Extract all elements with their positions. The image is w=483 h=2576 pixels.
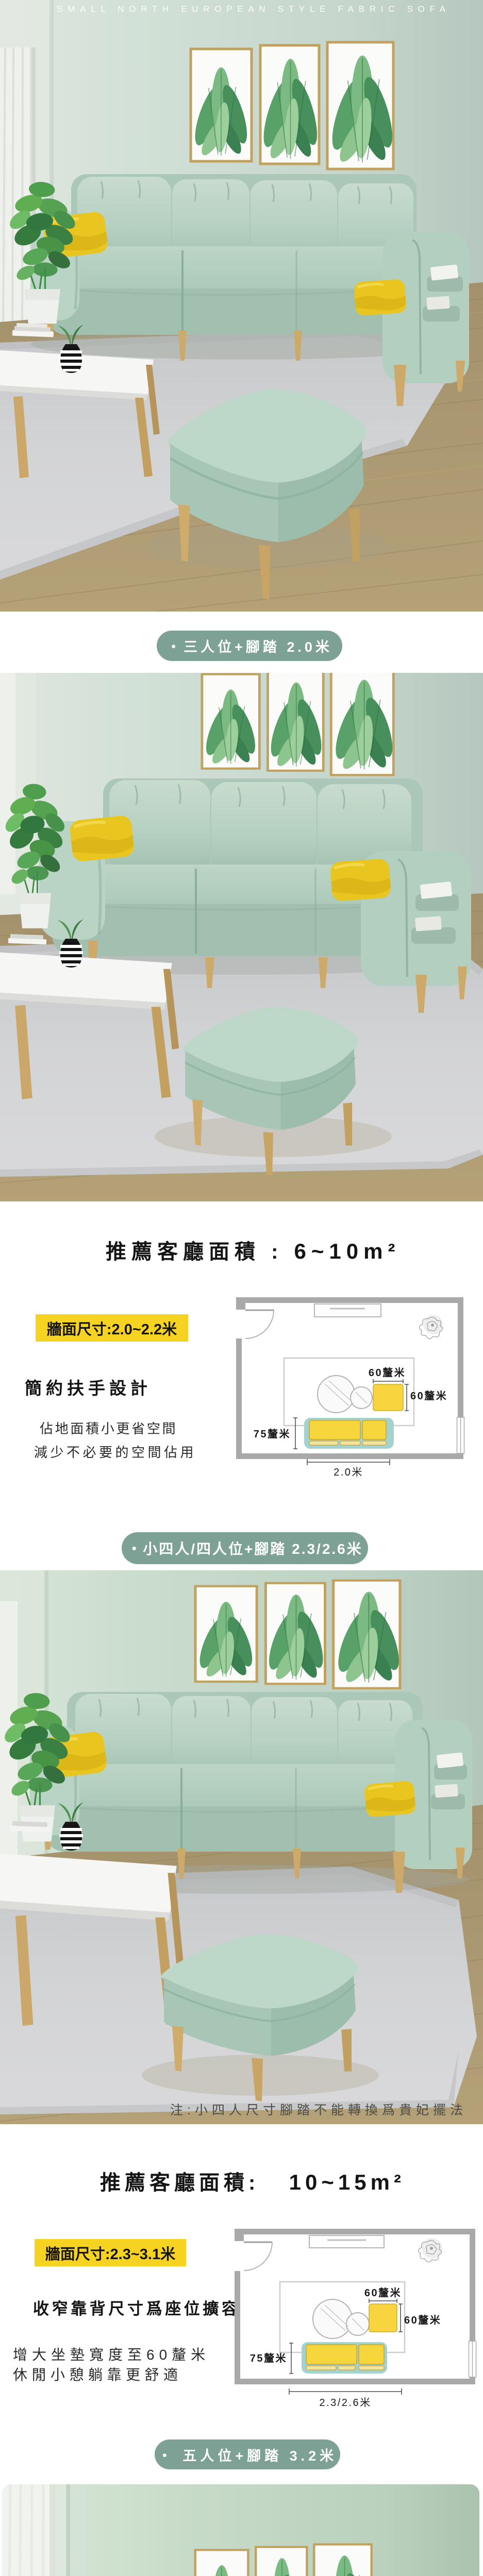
svg-text:60釐米: 60釐米 <box>369 1367 406 1379</box>
svg-text:2.3/2.6米: 2.3/2.6米 <box>319 2397 371 2409</box>
svg-text:60釐米: 60釐米 <box>410 1390 447 1402</box>
svg-text:SMALL NORTH EUROPEAN STYLE FAB: SMALL NORTH EUROPEAN STYLE FABRIC SOFA <box>57 4 450 14</box>
svg-text:75釐米: 75釐米 <box>250 2352 287 2364</box>
svg-text:60釐米: 60釐米 <box>364 2287 402 2299</box>
svg-text:2.0米: 2.0米 <box>334 1466 363 1478</box>
svg-text:75釐米: 75釐米 <box>254 1428 291 1440</box>
svg-text:60釐米: 60釐米 <box>404 2314 441 2326</box>
svg-text:注:小四人尺寸腳踏不能轉換爲貴妃擺法: 注:小四人尺寸腳踏不能轉換爲貴妃擺法 <box>170 2103 467 2117</box>
